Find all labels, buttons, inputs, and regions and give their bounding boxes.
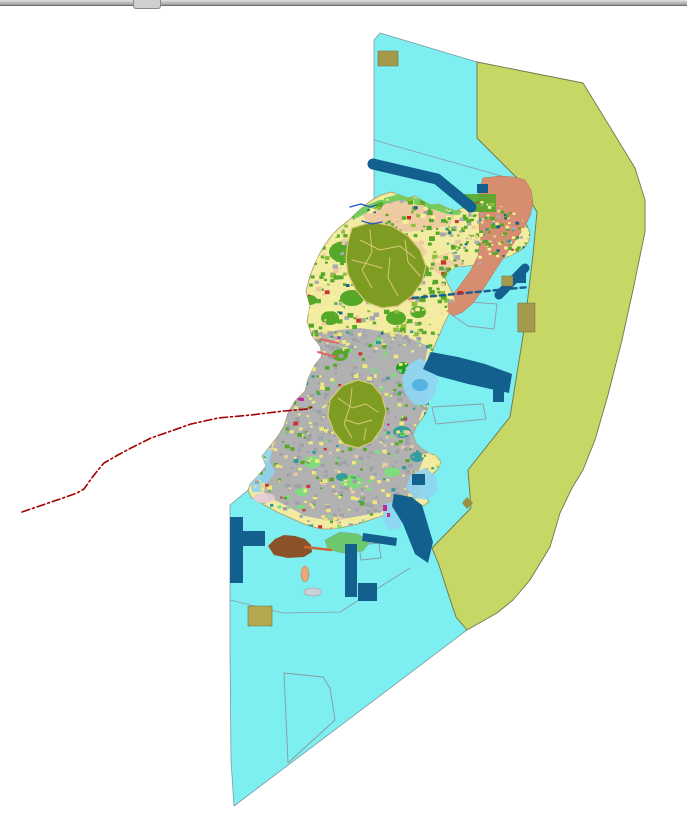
magenta-mark-1 bbox=[383, 505, 387, 511]
splitter-handle[interactable] bbox=[133, 0, 161, 9]
peach-islet bbox=[301, 566, 309, 582]
window-splitter[interactable] bbox=[0, 0, 687, 6]
red-mark-2 bbox=[407, 216, 411, 219]
khaki-plot-east-1 bbox=[502, 276, 513, 286]
port-bar-center bbox=[345, 544, 357, 597]
port-bar-west bbox=[230, 517, 243, 583]
port-bar-west-arm bbox=[243, 531, 265, 546]
magenta-mark-2 bbox=[387, 513, 390, 517]
map-canvas[interactable] bbox=[0, 0, 687, 821]
lavender-patch bbox=[253, 493, 275, 503]
port-rect-east bbox=[516, 272, 526, 283]
port-square-center bbox=[358, 583, 377, 601]
khaki-plot-north bbox=[378, 51, 398, 66]
port-rect-ne bbox=[477, 184, 488, 193]
khaki-plot-south bbox=[248, 606, 272, 626]
map-viewport bbox=[0, 0, 687, 821]
bay-east-deep bbox=[412, 379, 428, 391]
gray-islet bbox=[304, 588, 322, 596]
port-rect-small bbox=[412, 474, 425, 485]
red-mark-1 bbox=[458, 291, 463, 294]
port-rect-se bbox=[493, 389, 504, 402]
khaki-plot-east-2 bbox=[518, 303, 535, 332]
